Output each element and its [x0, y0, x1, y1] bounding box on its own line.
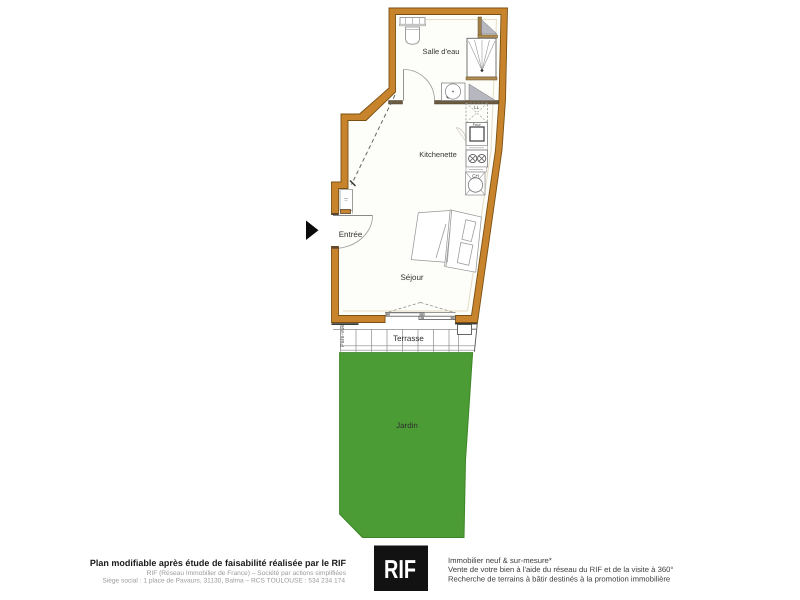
svg-text:Recherche de terrains à bâtir: Recherche de terrains à bâtir destinés à… — [448, 575, 670, 584]
svg-text:Pare-vue: Pare-vue — [340, 325, 346, 347]
svg-text:Vente de votre bien à l'aide d: Vente de votre bien à l'aide du réseau d… — [448, 565, 674, 574]
svg-text:Jardin: Jardin — [396, 421, 418, 430]
svg-text:Immobilier neuf & sur-mesure*: Immobilier neuf & sur-mesure* — [448, 556, 552, 565]
svg-text:RIF (Réseau Immobilier de Fran: RIF (Réseau Immobilier de France) – Soci… — [147, 570, 347, 577]
svg-text:Kitchenette: Kitchenette — [419, 150, 457, 159]
svg-text:Plan modifiable après étude de: Plan modifiable après étude de faisabili… — [90, 558, 347, 568]
svg-text:Entrée: Entrée — [339, 230, 363, 239]
svg-text:Séjour: Séjour — [400, 273, 423, 282]
svg-text:Terrasse: Terrasse — [393, 334, 424, 343]
svg-text:Siège social : 1 place de Pava: Siège social : 1 place de Pavaurs, 31130… — [102, 578, 345, 585]
svg-text:LL: LL — [474, 105, 480, 110]
svg-text:CH: CH — [472, 174, 479, 179]
svg-text:Salle d'eau: Salle d'eau — [423, 47, 460, 56]
svg-text:Four: Four — [473, 122, 482, 127]
svg-text:RIF: RIF — [384, 554, 416, 584]
